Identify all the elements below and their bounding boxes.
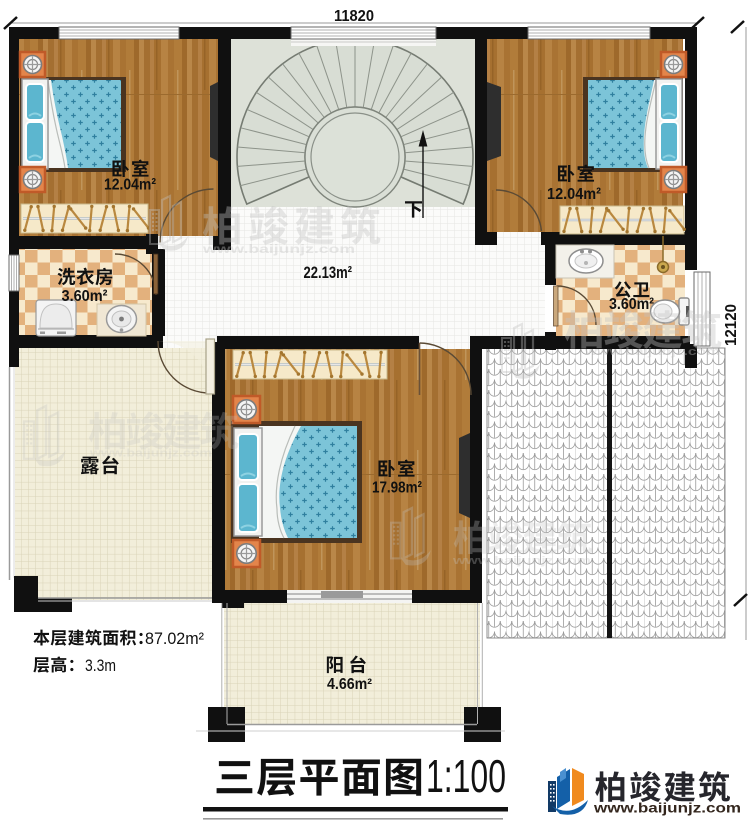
svg-text:www.baijunjz.com: www.baijunjz.com	[452, 555, 592, 567]
svg-text:www.baijunjz.com: www.baijunjz.com	[202, 242, 355, 256]
svg-text:3.3m: 3.3m	[85, 656, 116, 675]
svg-text:12.04m²: 12.04m²	[547, 186, 601, 203]
svg-text:1:100: 1:100	[426, 750, 506, 802]
svg-text:www.baijunjz.com: www.baijunjz.com	[89, 448, 213, 460]
svg-text:22.13m²: 22.13m²	[304, 264, 353, 282]
svg-text:12120: 12120	[723, 304, 740, 346]
svg-text:3.60m²: 3.60m²	[609, 296, 654, 313]
svg-text:3.60m²: 3.60m²	[62, 288, 108, 305]
svg-text:17.98m²: 17.98m²	[372, 480, 422, 497]
svg-text:11820: 11820	[334, 8, 374, 25]
svg-text:www.baijunjz.com: www.baijunjz.com	[584, 346, 721, 358]
svg-text:4.66m²: 4.66m²	[327, 676, 372, 693]
svg-text:www.baijunjz.com: www.baijunjz.com	[593, 801, 741, 816]
svg-text:12.04m²: 12.04m²	[104, 177, 156, 194]
svg-text:87.02m²: 87.02m²	[145, 629, 204, 648]
